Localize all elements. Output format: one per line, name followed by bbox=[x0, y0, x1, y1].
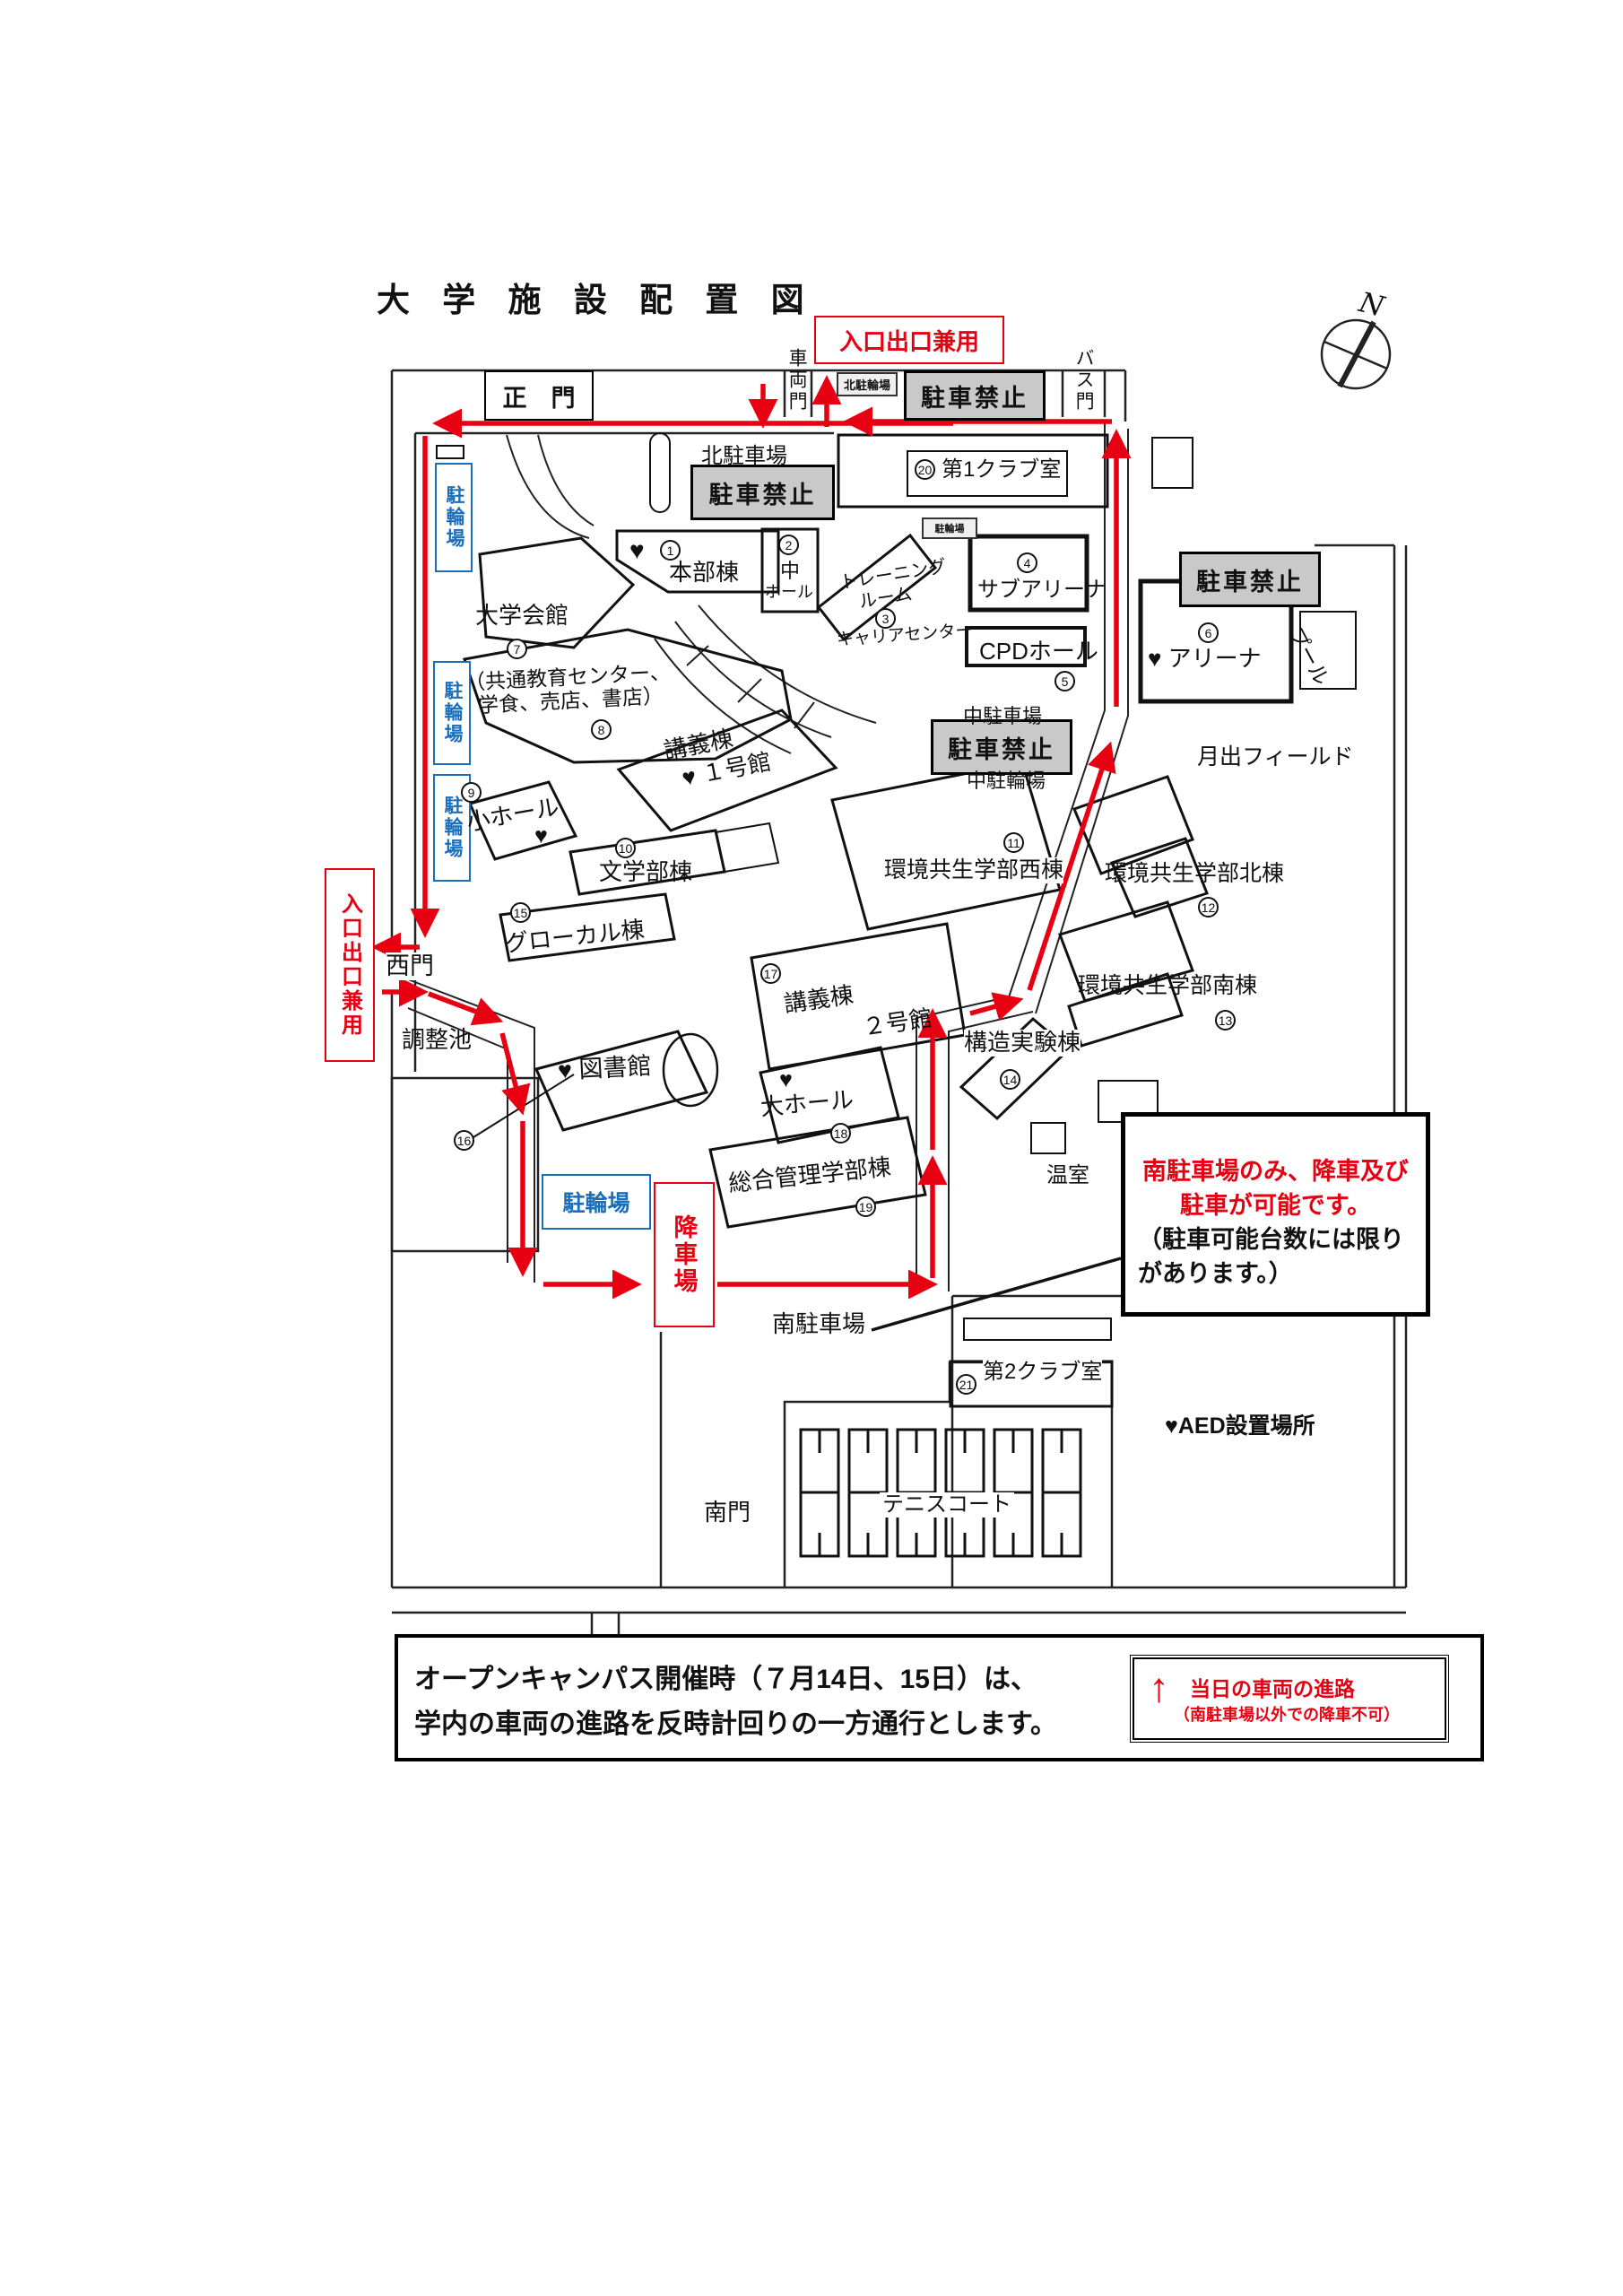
building-num-5: 5 bbox=[1055, 671, 1075, 691]
no-parking-sign-north-east: 駐車禁止 bbox=[904, 370, 1046, 421]
no-parking-sign-mid: 駐車禁止 bbox=[931, 719, 1072, 775]
callout-black-line-2: があります。） bbox=[1125, 1257, 1426, 1291]
notice-line-2: 学内の車両の進路を反時計回りの一方通行とします。 bbox=[414, 1702, 1057, 1747]
tsukide-field-label: 月出フィールド bbox=[1197, 744, 1354, 770]
building-num-8: 8 bbox=[591, 719, 612, 740]
compass-icon bbox=[1322, 320, 1390, 388]
building-naka-hall-label-bottom: ホール bbox=[765, 583, 813, 602]
building-num-20: 20 bbox=[915, 459, 935, 480]
arena-name: アリーナ bbox=[1168, 645, 1262, 672]
building-num-3: 3 bbox=[875, 608, 896, 629]
south-parking-callout: 南駐車場のみ、降車及び 駐車が可能です。 （駐車可能台数には限り があります。） bbox=[1121, 1112, 1430, 1317]
notice-line-1: オープンキャンパス開催時（７月14日、15日）は、 bbox=[414, 1657, 1057, 1702]
building-num-18: 18 bbox=[830, 1123, 851, 1144]
drop-off-area-sign: 降車場 bbox=[654, 1182, 715, 1327]
building-num-19: 19 bbox=[855, 1196, 876, 1217]
open-campus-notice: オープンキャンパス開催時（７月14日、15日）は、 学内の車両の進路を反時計回り… bbox=[395, 1634, 1484, 1761]
building-library-label: ♥ 図書館 bbox=[557, 1052, 652, 1084]
no-parking-sign-north: 駐車禁止 bbox=[690, 465, 835, 520]
building-num-11: 11 bbox=[1003, 832, 1024, 853]
building-arena-label: ♥ アリーナ bbox=[1148, 646, 1262, 673]
building-num-1: 1 bbox=[660, 540, 681, 561]
route-legend: ↑ 当日の車両の進路 （南駐車場以外での降車不可） bbox=[1133, 1657, 1446, 1740]
mid-bike-parking-label: 中駐輪場 bbox=[967, 770, 1046, 792]
tennis-court-label: テニスコート bbox=[880, 1492, 1014, 1518]
building-num-15: 15 bbox=[510, 902, 531, 923]
building-num-17: 17 bbox=[760, 963, 781, 984]
main-gate-label: 正 門 bbox=[484, 370, 594, 421]
legend-title: 当日の車両の進路 bbox=[1190, 1672, 1355, 1702]
building-num-21: 21 bbox=[956, 1374, 976, 1395]
entrance-exit-sign-top: 入口出口兼用 bbox=[814, 316, 1004, 364]
building-club2-label: 第2クラブ室 bbox=[983, 1360, 1102, 1385]
legend-subtitle: （南駐車場以外での降車不可） bbox=[1174, 1702, 1400, 1726]
greenhouse-label: 温室 bbox=[1046, 1163, 1089, 1188]
callout-black-line-1: （駐車可能台数には限り bbox=[1125, 1222, 1426, 1257]
building-num-12: 12 bbox=[1198, 897, 1219, 918]
building-kouzou-label: 構造実験棟 bbox=[964, 1030, 1081, 1057]
route-arrow-icon: ↑ bbox=[1149, 1663, 1169, 1711]
building-bungaku-label: 文学部棟 bbox=[599, 859, 692, 886]
west-gate-label: 西門 bbox=[386, 952, 434, 980]
building-num-9: 9 bbox=[461, 782, 482, 803]
building-naka-hall-label-top: 中 bbox=[780, 560, 800, 582]
building-num-7: 7 bbox=[507, 639, 527, 659]
sho-hall-heart-icon: ♥ bbox=[534, 823, 548, 849]
aed-note-label: ♥AED設置場所 bbox=[1165, 1413, 1315, 1439]
pond-label: 調整池 bbox=[402, 1027, 472, 1054]
building-num-2: 2 bbox=[778, 535, 799, 555]
north-parking-label: 北駐車場 bbox=[701, 444, 787, 469]
no-parking-sign-arena: 駐車禁止 bbox=[1179, 552, 1321, 607]
arena-heart-icon: ♥ bbox=[1148, 645, 1161, 672]
entrance-exit-sign-west: 入口出口兼用 bbox=[325, 868, 375, 1062]
road-lines bbox=[408, 422, 1128, 1291]
notice-text: オープンキャンパス開催時（７月14日、15日）は、 学内の車両の進路を反時計回り… bbox=[414, 1657, 1057, 1747]
callout-red-line-1: 南駐車場のみ、降車及び bbox=[1125, 1154, 1426, 1188]
dai-hall-heart-icon: ♥ bbox=[779, 1067, 793, 1093]
building-sub-arena-label: サブアリーナ bbox=[977, 578, 1107, 603]
mid-parking-label: 中駐車場 bbox=[963, 705, 1042, 727]
south-parking-label: 南駐車場 bbox=[772, 1311, 865, 1338]
building-num-10: 10 bbox=[615, 838, 636, 858]
building-num-4: 4 bbox=[1017, 552, 1037, 573]
building-num-13: 13 bbox=[1215, 1010, 1236, 1031]
building-kaikan-label: 大学会館 bbox=[475, 603, 568, 630]
building-kankyo-west-label: 環境共生学部西棟 bbox=[884, 857, 1063, 883]
building-num-6: 6 bbox=[1198, 622, 1219, 643]
building-num-16: 16 bbox=[454, 1130, 474, 1151]
library-name: 図書館 bbox=[578, 1052, 652, 1083]
building-honbu-label: 本部棟 bbox=[669, 560, 739, 587]
south-gate-label: 南門 bbox=[704, 1500, 751, 1526]
vehicle-gate-label: 車両門 bbox=[785, 348, 807, 413]
north-bike-parking-sign: 北駐輪場 bbox=[837, 372, 898, 396]
building-kankyo-south-label: 環境共生学部南棟 bbox=[1078, 973, 1257, 999]
campus-map-page: 大 学 施 設 配 置 図 N 正 門 車両門 バス門 西門 南門 入口出口兼用… bbox=[0, 0, 1623, 2296]
callout-red-line-2: 駐車が可能です。 bbox=[1125, 1188, 1426, 1222]
building-club1-label: 第1クラブ室 bbox=[942, 457, 1061, 483]
aed-heart-icon: ♥ bbox=[629, 536, 645, 565]
page-title: 大 学 施 設 配 置 図 bbox=[377, 273, 816, 321]
building-cpd-label: CPDホール bbox=[979, 639, 1098, 665]
bike-parking-sign-south: 駐輪場 bbox=[542, 1174, 651, 1230]
building-num-14: 14 bbox=[1000, 1069, 1020, 1090]
building-kankyo-north-label: 環境共生学部北棟 bbox=[1105, 861, 1284, 887]
library-heart-icon: ♥ bbox=[557, 1057, 573, 1084]
small-bike-parking-sign: 駐輪場 bbox=[922, 517, 977, 539]
bike-parking-sign-west-1: 駐輪場 bbox=[435, 463, 473, 572]
bus-gate-label: バス門 bbox=[1072, 348, 1094, 413]
